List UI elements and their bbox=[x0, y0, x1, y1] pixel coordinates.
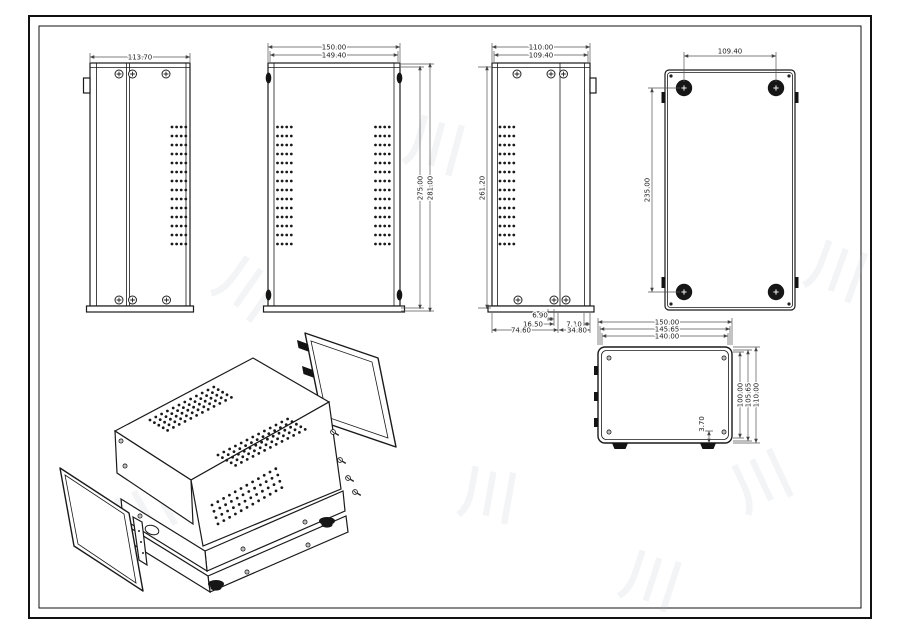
side-b-body bbox=[492, 63, 590, 306]
dim-label-top-width-outer: 150.00 bbox=[322, 43, 347, 51]
engineering-drawing-page: 川 川 川 川 川 川 川 川 川 川 113.70 bbox=[0, 0, 900, 636]
isometric-exploded-view bbox=[60, 333, 396, 592]
top-view-bottom-plate bbox=[264, 306, 405, 312]
front-view-feet bbox=[612, 443, 716, 449]
dim-label-top-depth-outer: 281.00 bbox=[426, 176, 434, 201]
bottom-view: 109.40 235.00 bbox=[643, 48, 798, 311]
watermark: 川 bbox=[798, 229, 876, 313]
dim-label-top-depth-inner: 275.00 bbox=[416, 176, 424, 201]
top-view-body bbox=[268, 63, 400, 306]
dim-label-foot-span-width: 109.40 bbox=[718, 48, 743, 56]
dim-label-side-b-width-outer: 110.00 bbox=[529, 43, 554, 51]
side-view-b: 110.00 109.40 261.20 6.90 16.50 74.60 7.… bbox=[478, 43, 596, 335]
watermark: 川 bbox=[721, 439, 802, 525]
watermark: 川 bbox=[454, 457, 523, 534]
dim-label-front-h2: 105.65 bbox=[744, 383, 752, 408]
dim-label-d1: 6.90 bbox=[532, 312, 548, 320]
dim-label-side-a-width: 113.70 bbox=[128, 53, 153, 61]
side-a-hinge-tab bbox=[84, 78, 91, 93]
side-view-a: 113.70 bbox=[84, 53, 194, 312]
dim-label-foot-span-depth: 235.00 bbox=[643, 178, 651, 203]
dim-label-top-width-inner: 149.40 bbox=[322, 51, 347, 59]
top-view: 150.00 149.40 275.00 281.00 bbox=[264, 43, 435, 312]
side-a-bottom-plate bbox=[87, 306, 194, 312]
technical-drawing-canvas: 川 川 川 川 川 川 川 川 川 川 113.70 bbox=[0, 0, 900, 636]
dim-label-front-w3: 140.00 bbox=[655, 332, 680, 340]
dim-label-d3: 74.60 bbox=[511, 327, 531, 335]
watermark: 川 bbox=[613, 540, 689, 623]
dim-label-front-lip: 3.70 bbox=[698, 416, 706, 432]
dim-label-front-h1: 100.00 bbox=[736, 383, 744, 408]
front-view: 150.00 145.65 140.00 100.00 105.65 110.0… bbox=[594, 318, 760, 449]
side-a-body bbox=[90, 63, 190, 306]
front-view-body bbox=[598, 347, 732, 443]
side-b-hinge-tab bbox=[590, 78, 596, 93]
dim-label-side-b-width-inner: 109.40 bbox=[529, 51, 554, 59]
dim-label-side-b-depth: 261.20 bbox=[478, 176, 486, 201]
dim-label-front-h3: 110.00 bbox=[752, 383, 760, 408]
bottom-view-body bbox=[665, 70, 795, 310]
watermark: 川 bbox=[398, 105, 472, 186]
dim-label-d5: 34.80 bbox=[567, 327, 587, 335]
